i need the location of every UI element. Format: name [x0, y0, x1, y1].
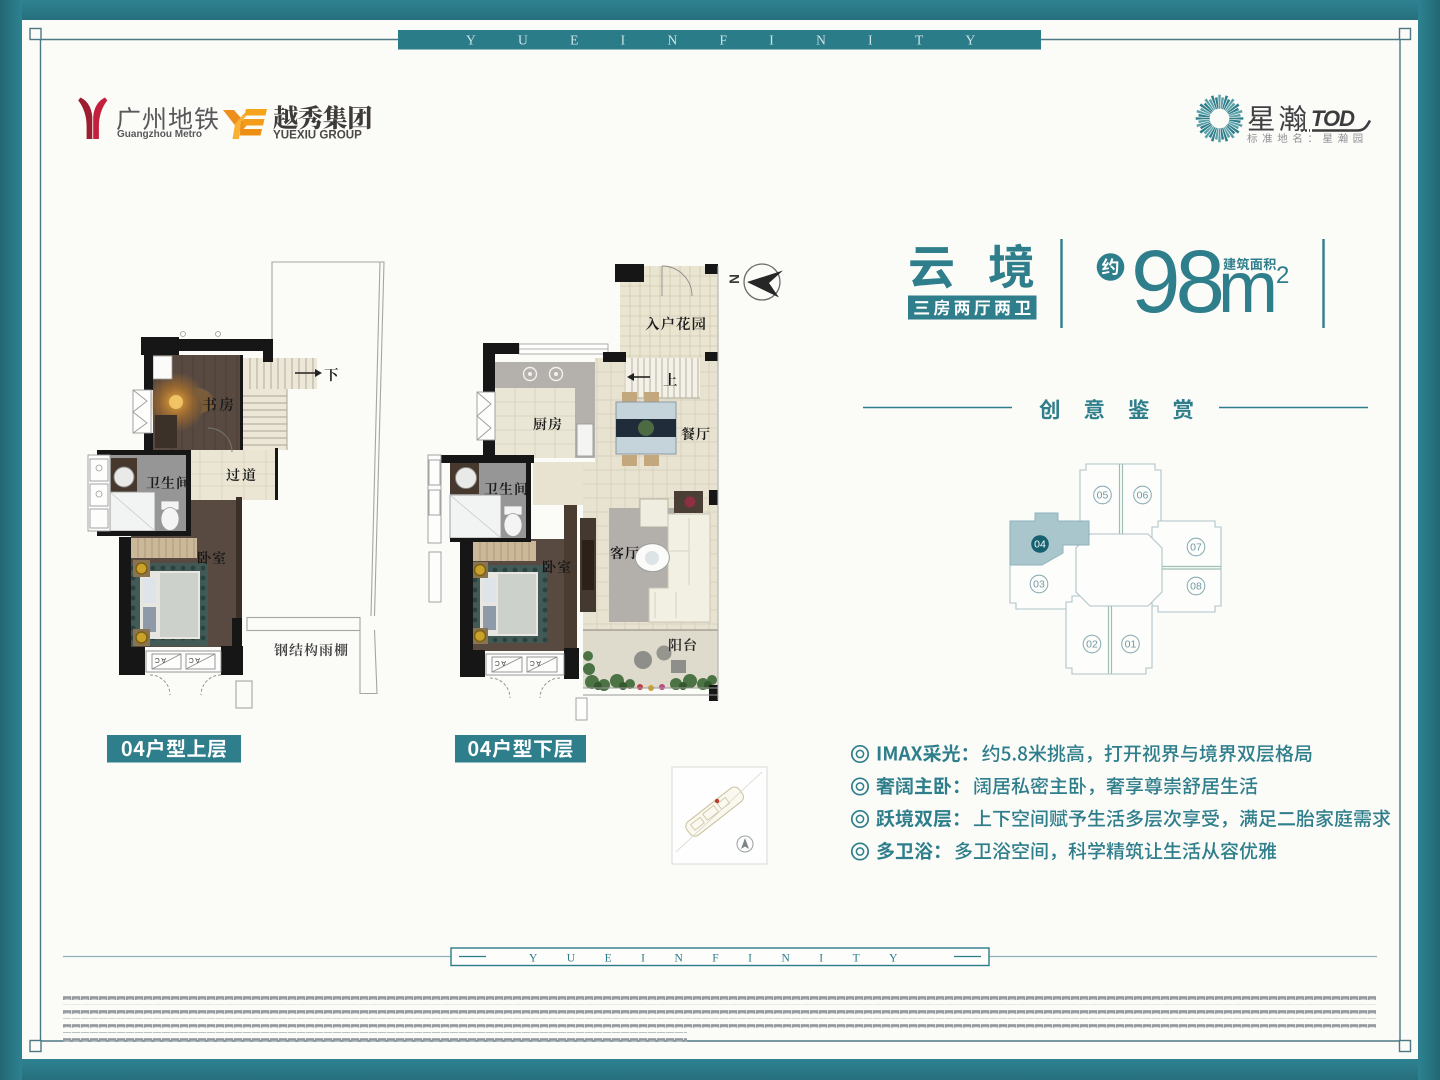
svg-text:YUEINFINITY: YUEINFINITY	[466, 33, 1018, 48]
svg-text:A C: A C	[495, 659, 506, 666]
svg-text:YUEXIU GROUP: YUEXIU GROUP	[273, 129, 362, 142]
svg-text:2: 2	[1276, 262, 1289, 289]
svg-text:05: 05	[1097, 490, 1109, 502]
svg-text:N: N	[727, 274, 742, 284]
svg-text:YUEINFINITY: YUEINFINITY	[529, 953, 927, 965]
svg-text:A C: A C	[155, 656, 166, 663]
svg-text:08: 08	[1190, 581, 1202, 593]
svg-text:98: 98	[1131, 231, 1221, 331]
svg-text:03: 03	[1033, 579, 1045, 591]
svg-text:A C: A C	[189, 656, 200, 663]
svg-text:02: 02	[1086, 639, 1098, 651]
svg-text:Guangzhou Metro: Guangzhou Metro	[117, 129, 202, 140]
svg-text:TOD: TOD	[1311, 106, 1355, 131]
svg-text:06: 06	[1137, 490, 1149, 502]
svg-text:07: 07	[1190, 542, 1202, 554]
svg-text:01: 01	[1125, 639, 1137, 651]
svg-text:A C: A C	[530, 659, 541, 666]
svg-text:04: 04	[1034, 539, 1046, 551]
